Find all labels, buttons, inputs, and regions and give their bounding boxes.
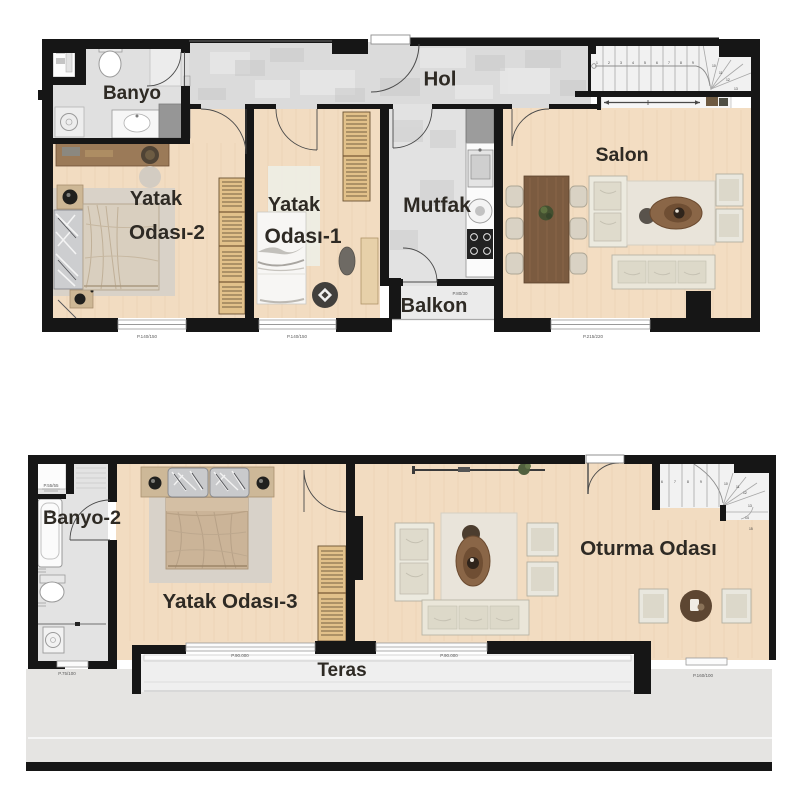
svg-text:12: 12 xyxy=(726,78,730,82)
svg-text:6: 6 xyxy=(661,480,663,484)
svg-text:Odası-1: Odası-1 xyxy=(264,225,341,248)
svg-text:8: 8 xyxy=(687,480,689,484)
svg-text:9: 9 xyxy=(692,61,694,65)
svg-text:13: 13 xyxy=(734,87,738,91)
svg-text:12: 12 xyxy=(743,491,747,495)
svg-text:Mutfak: Mutfak xyxy=(403,194,471,217)
svg-text:7: 7 xyxy=(674,480,676,484)
svg-text:15: 15 xyxy=(749,527,753,531)
svg-text:14: 14 xyxy=(745,516,749,520)
svg-text:11: 11 xyxy=(719,71,723,75)
svg-text:P.90.000: P.90.000 xyxy=(440,653,458,658)
svg-text:7: 7 xyxy=(668,61,670,65)
svg-text:Yatak: Yatak xyxy=(268,194,321,216)
svg-text:P.90.000: P.90.000 xyxy=(231,653,249,658)
svg-text:2: 2 xyxy=(608,61,610,65)
svg-text:Teras: Teras xyxy=(317,660,366,681)
svg-text:P.160/100: P.160/100 xyxy=(693,673,713,678)
svg-text:Banyo-2: Banyo-2 xyxy=(43,507,121,529)
svg-text:Oturma Odası: Oturma Odası xyxy=(580,537,717,560)
svg-text:3: 3 xyxy=(620,61,622,65)
svg-text:Salon: Salon xyxy=(595,144,648,166)
svg-text:5: 5 xyxy=(644,61,646,65)
svg-text:P.75/100: P.75/100 xyxy=(58,671,76,676)
svg-text:13: 13 xyxy=(748,504,752,508)
svg-text:Hol: Hol xyxy=(423,68,456,91)
svg-text:1: 1 xyxy=(596,61,598,65)
svg-text:P.140/150: P.140/150 xyxy=(137,334,157,339)
svg-text:P.55/55: P.55/55 xyxy=(44,483,59,488)
svg-text:P.80/30: P.80/30 xyxy=(453,291,468,296)
svg-text:Yatak Odası-3: Yatak Odası-3 xyxy=(162,590,297,613)
svg-text:10: 10 xyxy=(724,482,728,486)
svg-text:9: 9 xyxy=(700,480,702,484)
svg-text:Yatak: Yatak xyxy=(130,188,183,210)
svg-text:8: 8 xyxy=(680,61,682,65)
svg-text:P.140/150: P.140/150 xyxy=(287,334,307,339)
svg-text:10: 10 xyxy=(712,64,716,68)
svg-text:P.215/220: P.215/220 xyxy=(583,334,603,339)
svg-text:Odası-2: Odası-2 xyxy=(129,221,205,244)
svg-text:11: 11 xyxy=(736,485,740,489)
svg-text:Balkon: Balkon xyxy=(401,295,468,317)
svg-text:6: 6 xyxy=(656,61,658,65)
svg-text:4: 4 xyxy=(632,61,634,65)
svg-text:Banyo: Banyo xyxy=(103,83,161,104)
